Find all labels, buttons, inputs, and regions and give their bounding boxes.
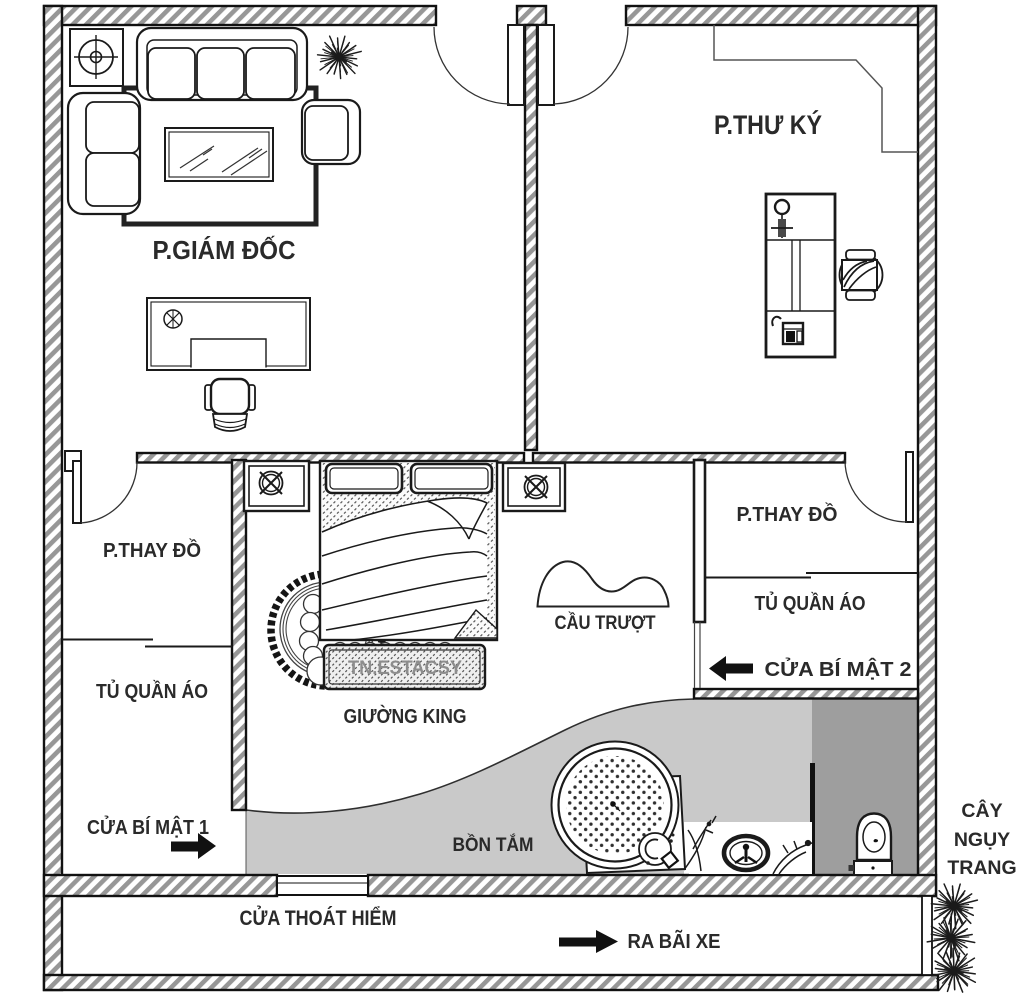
svg-text:NGỤY: NGỤY xyxy=(954,829,1010,851)
svg-text:TN.ESTACSY: TN.ESTACSY xyxy=(348,658,462,679)
svg-text:CỬA THOÁT HIỂM: CỬA THOÁT HIỂM xyxy=(240,906,397,930)
svg-text:TỦ QUẦN ÁO: TỦ QUẦN ÁO xyxy=(755,591,866,615)
svg-text:TRANG: TRANG xyxy=(947,857,1016,879)
svg-text:P.GIÁM ĐỐC: P.GIÁM ĐỐC xyxy=(153,235,296,265)
svg-text:TỦ QUẦN ÁO: TỦ QUẦN ÁO xyxy=(96,679,208,703)
svg-text:P.THAY ĐỒ: P.THAY ĐỒ xyxy=(103,538,201,562)
svg-text:P.THƯ KÝ: P.THƯ KÝ xyxy=(714,109,822,140)
svg-text:P.THAY ĐỒ: P.THAY ĐỒ xyxy=(737,502,838,526)
svg-text:GIƯỜNG KING: GIƯỜNG KING xyxy=(344,704,467,728)
svg-text:RA BÃI XE: RA BÃI XE xyxy=(628,930,721,953)
svg-text:CỬA BÍ MẬT 1: CỬA BÍ MẬT 1 xyxy=(87,815,209,839)
svg-text:BỒN TẮM: BỒN TẮM xyxy=(453,834,534,856)
svg-text:CỬA BÍ MẬT 2: CỬA BÍ MẬT 2 xyxy=(765,657,912,681)
svg-text:CẦU TRƯỢT: CẦU TRƯỢT xyxy=(555,612,656,634)
svg-text:CÂY: CÂY xyxy=(961,798,1002,822)
